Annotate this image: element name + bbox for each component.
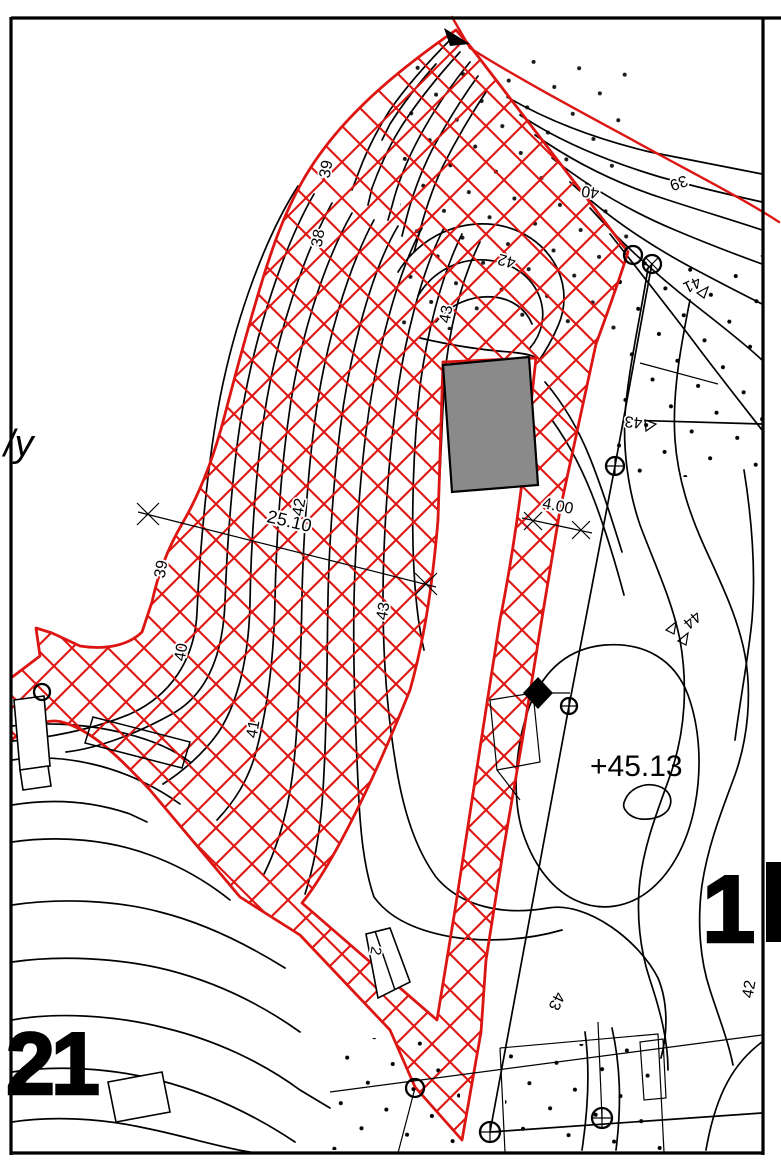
site-plan-page: 25.10 4.00 (0, 0, 781, 1175)
building-main-gray (443, 357, 538, 492)
building-left-edge (14, 696, 50, 770)
contour-label: 42 (290, 497, 310, 518)
contour-label: 38 (309, 228, 329, 249)
parcel-number-left: 21 (6, 1014, 98, 1113)
small-building-label: 2 (366, 945, 384, 956)
parcel-number-right-partial (766, 862, 781, 942)
contour-label: 39 (667, 171, 690, 193)
contour-label: 41 (244, 719, 264, 740)
building-bottom-left (108, 1072, 170, 1122)
contour-label: 43 (545, 989, 568, 1012)
contour-label: 43 (437, 304, 457, 325)
contour-label: 43 (624, 412, 643, 430)
contour-label: 40 (580, 182, 600, 201)
contour-label: 39 (152, 559, 172, 580)
crossed-circle-icon (592, 1108, 612, 1128)
contour-label: 43 (374, 601, 394, 622)
parcel-number-right: 1 (702, 856, 755, 963)
contour-label: 44 (680, 607, 705, 632)
site-plan-canvas: 25.10 4.00 (0, 0, 781, 1175)
crossed-circle-icon (480, 1122, 500, 1142)
parcel-hatch-area (11, 30, 628, 1140)
contour-label: 40 (172, 642, 192, 663)
crossed-circle-icon (606, 457, 624, 475)
crossed-circle-icon (561, 698, 577, 714)
spot-elevation-label: +45.13 (590, 750, 683, 783)
building-left-edge-annex (20, 766, 51, 790)
contour-label: 39 (317, 159, 337, 180)
margin-note: /y (1, 423, 36, 465)
contour-label: 42 (740, 979, 760, 1000)
